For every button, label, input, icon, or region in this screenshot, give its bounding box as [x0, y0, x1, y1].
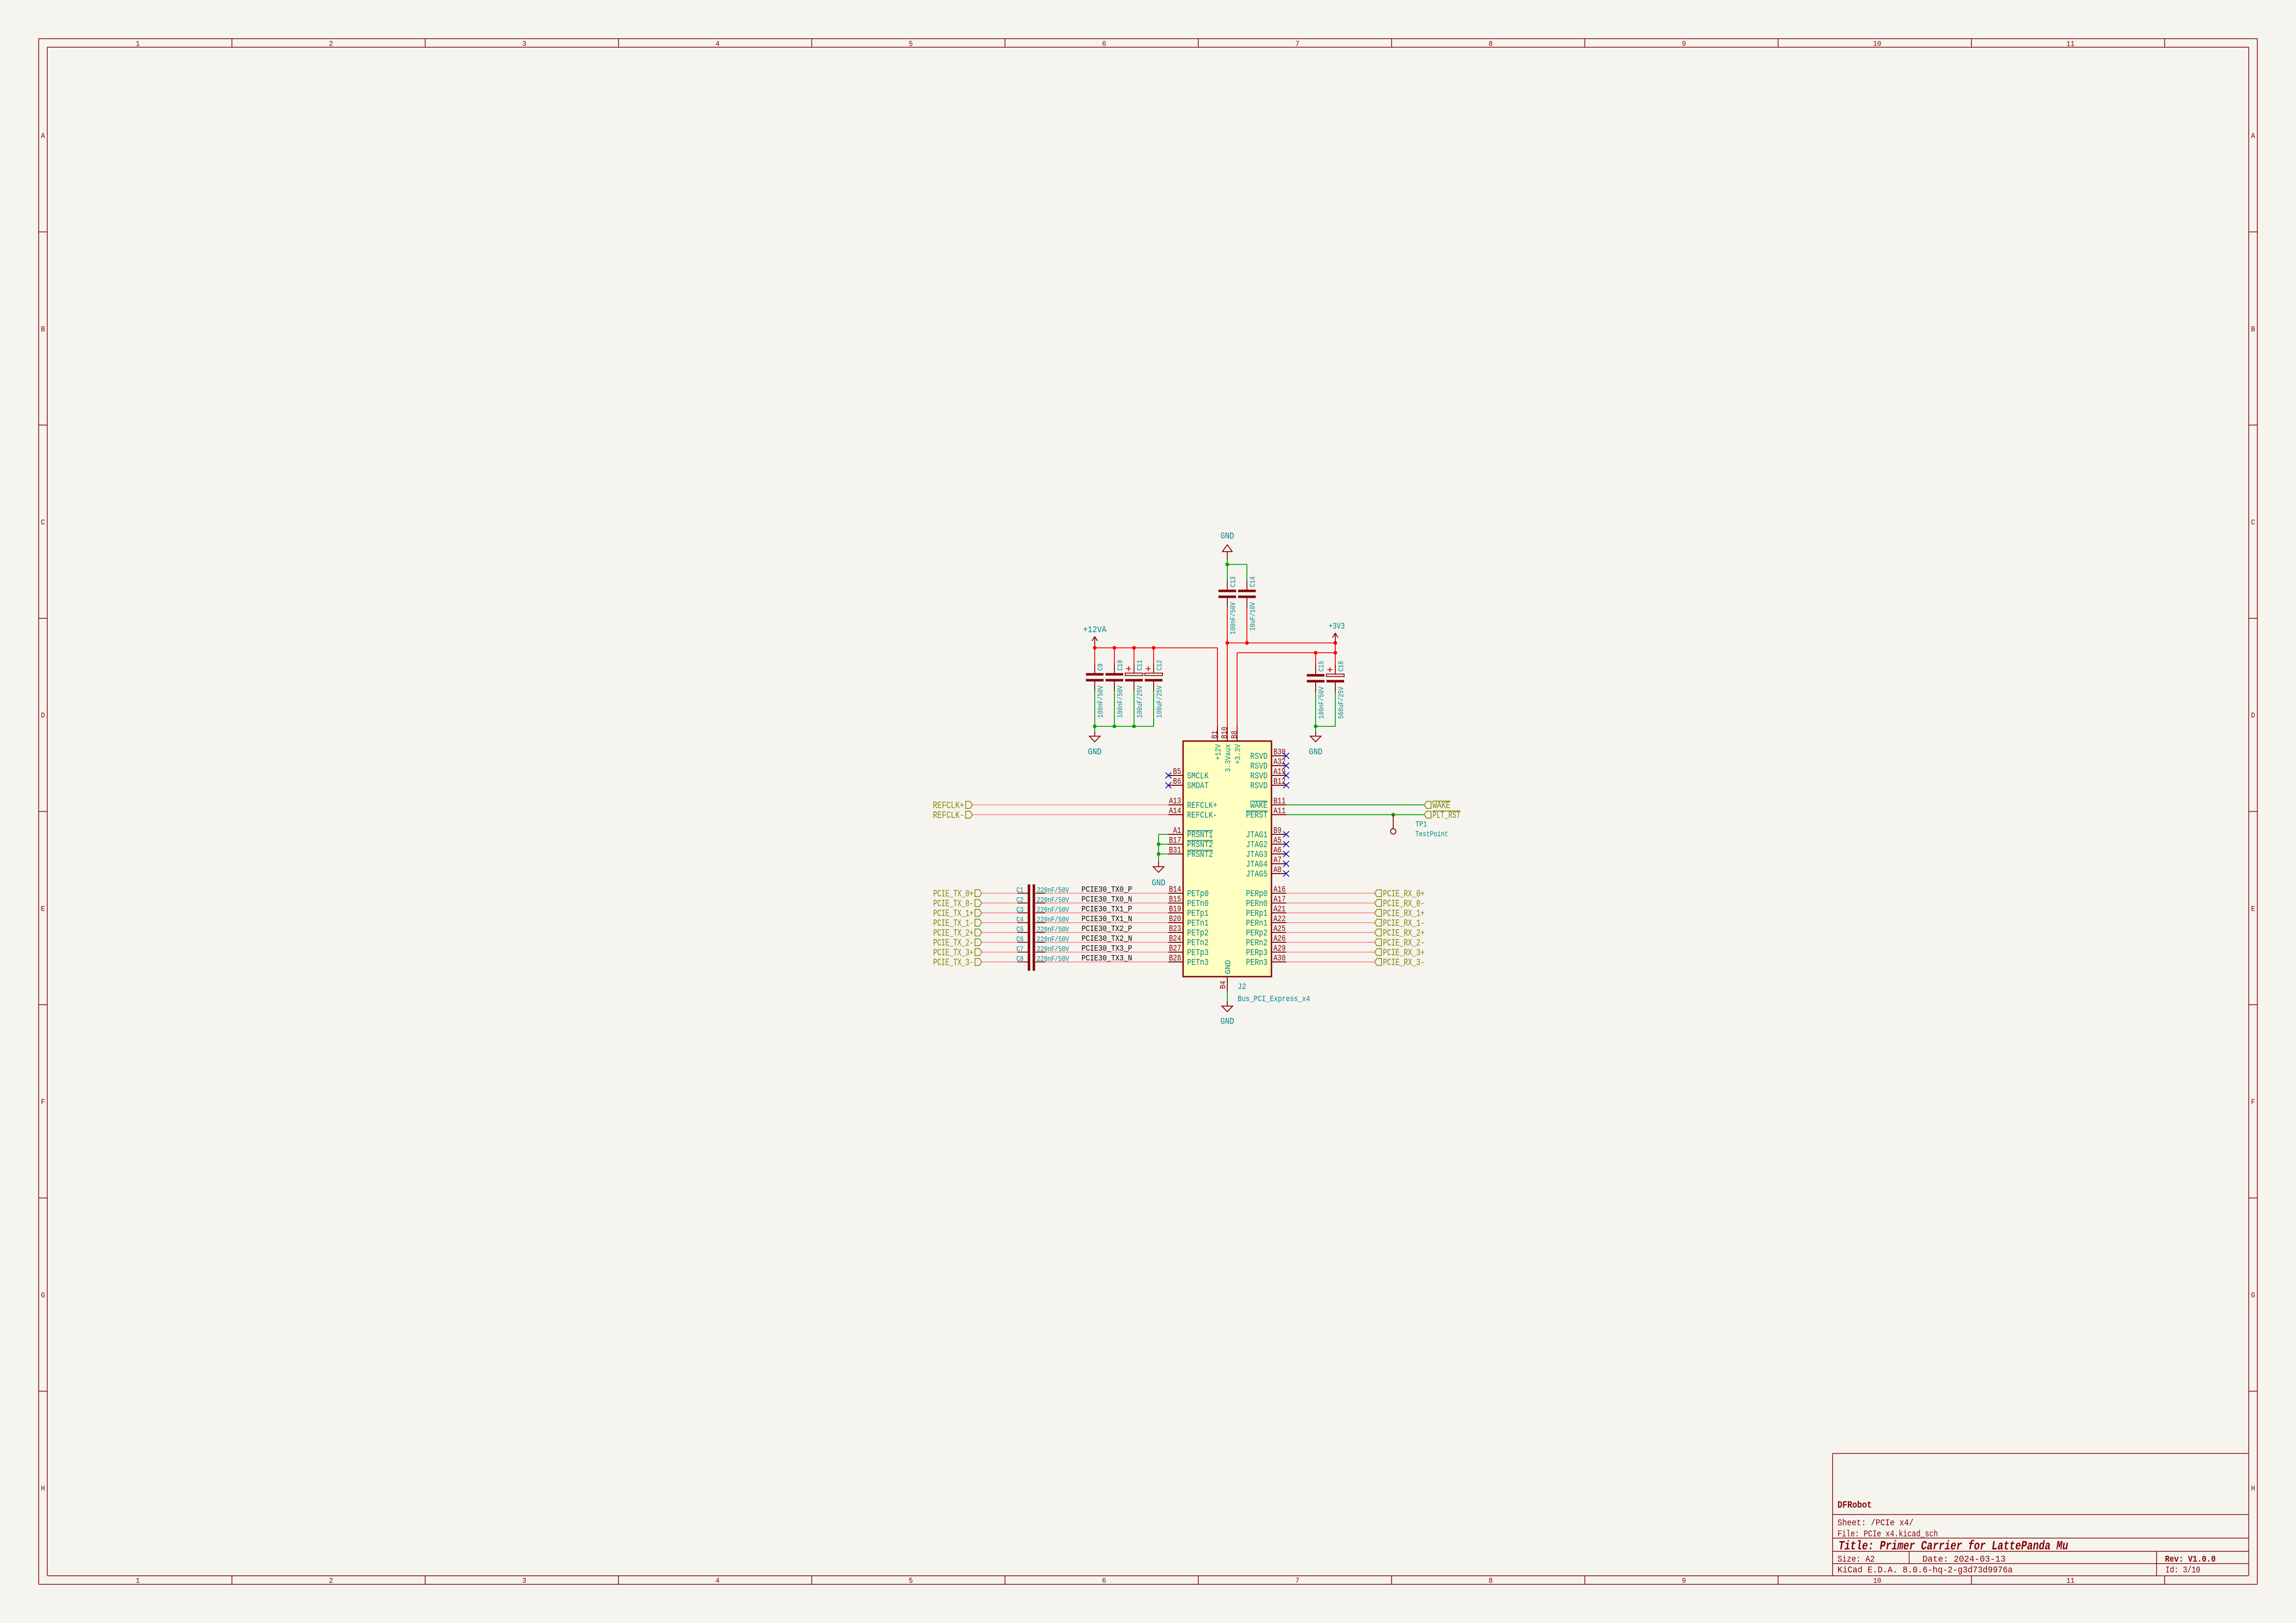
svg-text:DFRobot: DFRobot	[1837, 1500, 1872, 1511]
svg-text:GND: GND	[1088, 747, 1102, 757]
svg-text:C6: C6	[1016, 936, 1024, 944]
svg-text:JTAG2: JTAG2	[1246, 840, 1268, 850]
svg-text:A21: A21	[1273, 905, 1286, 914]
svg-text:PCIE_RX_0-: PCIE_RX_0-	[1383, 899, 1425, 909]
svg-text:KiCad E.D.A. 8.0.6-hq-2-g3d73d: KiCad E.D.A. 8.0.6-hq-2-g3d73d9976a	[1837, 1566, 2013, 1575]
svg-text:Size: A2: Size: A2	[1837, 1555, 1875, 1565]
svg-text:220nF/50V: 220nF/50V	[1037, 906, 1069, 914]
svg-text:3.3Vaux: 3.3Vaux	[1224, 744, 1233, 772]
svg-text:PCIE_RX_1+: PCIE_RX_1+	[1383, 908, 1425, 919]
svg-text:GND: GND	[1309, 747, 1323, 757]
svg-text:C: C	[41, 518, 45, 527]
svg-text:B20: B20	[1169, 914, 1181, 924]
svg-text:B11: B11	[1273, 797, 1286, 806]
svg-text:A32: A32	[1273, 757, 1286, 767]
svg-text:B12: B12	[1273, 777, 1286, 787]
svg-text:A13: A13	[1169, 797, 1181, 806]
svg-text:TP1: TP1	[1415, 820, 1427, 829]
svg-text:PCIE_TX_2-: PCIE_TX_2-	[933, 938, 973, 949]
svg-text:220nF/50V: 220nF/50V	[1037, 956, 1069, 963]
svg-text:6: 6	[1102, 1577, 1106, 1585]
svg-text:1: 1	[135, 40, 139, 49]
svg-text:E: E	[2251, 905, 2255, 913]
svg-text:PERn1: PERn1	[1246, 919, 1268, 929]
svg-text:100uF/25V: 100uF/25V	[1136, 686, 1144, 718]
svg-text:GND: GND	[1224, 960, 1233, 974]
svg-text:Date: 2024-03-13: Date: 2024-03-13	[1922, 1555, 2006, 1565]
svg-text:PCIE30_TX3_N: PCIE30_TX3_N	[1081, 954, 1132, 963]
svg-text:PRSNT2: PRSNT2	[1187, 850, 1213, 860]
svg-text:A1: A1	[1173, 826, 1181, 836]
svg-text:REFCLK+: REFCLK+	[933, 800, 964, 811]
svg-text:A16: A16	[1273, 885, 1286, 895]
svg-text:100uF/25V: 100uF/25V	[1156, 686, 1164, 718]
svg-text:PCIE_RX_2+: PCIE_RX_2+	[1383, 928, 1425, 939]
svg-text:PCIE_TX_0+: PCIE_TX_0+	[933, 889, 973, 900]
svg-text:PCIE30_TX2_P: PCIE30_TX2_P	[1081, 925, 1132, 934]
svg-text:B1: B1	[1211, 731, 1220, 739]
svg-text:B9: B9	[1273, 826, 1282, 836]
svg-text:+12VA: +12VA	[1083, 625, 1107, 635]
svg-text:8: 8	[1488, 1577, 1492, 1585]
svg-text:C7: C7	[1016, 946, 1024, 954]
svg-text:PERp3: PERp3	[1246, 948, 1268, 958]
svg-text:A5: A5	[1273, 836, 1282, 846]
svg-text:B28: B28	[1169, 954, 1181, 963]
svg-text:C4: C4	[1016, 916, 1024, 924]
svg-text:A19: A19	[1273, 767, 1286, 777]
svg-text:D: D	[41, 712, 45, 720]
svg-text:A30: A30	[1273, 954, 1286, 963]
svg-text:REFCLK+: REFCLK+	[1187, 801, 1217, 811]
svg-text:GND: GND	[1220, 532, 1234, 541]
svg-text:PCIE30_TX1_N: PCIE30_TX1_N	[1081, 915, 1132, 924]
svg-text:+3.3V: +3.3V	[1234, 744, 1243, 764]
svg-text:F: F	[41, 1098, 45, 1107]
svg-text:A17: A17	[1273, 895, 1286, 905]
svg-text:PCIE_TX_0-: PCIE_TX_0-	[933, 899, 973, 909]
svg-text:RSVD: RSVD	[1250, 781, 1268, 791]
svg-text:8: 8	[1488, 40, 1492, 49]
svg-text:B30: B30	[1273, 747, 1286, 757]
svg-text:H: H	[2251, 1485, 2255, 1493]
svg-text:PCIE30_TX1_P: PCIE30_TX1_P	[1081, 905, 1132, 914]
svg-text:PCIE_RX_0+: PCIE_RX_0+	[1383, 889, 1425, 900]
svg-text:C13: C13	[1230, 577, 1238, 587]
svg-text:220nF/50V: 220nF/50V	[1037, 887, 1069, 895]
svg-text:560uF/25V: 560uF/25V	[1338, 687, 1346, 719]
svg-text:PCIE30_TX3_P: PCIE30_TX3_P	[1081, 944, 1132, 954]
svg-text:A6: A6	[1273, 846, 1282, 855]
svg-text:9: 9	[1682, 1577, 1686, 1585]
svg-text:SMCLK: SMCLK	[1187, 772, 1209, 781]
svg-text:6: 6	[1102, 40, 1106, 49]
svg-text:A22: A22	[1273, 914, 1286, 924]
svg-text:A7: A7	[1273, 855, 1282, 865]
svg-text:PCIE30_TX2_N: PCIE30_TX2_N	[1081, 934, 1132, 944]
svg-text:C14: C14	[1249, 577, 1257, 587]
svg-text:A25: A25	[1273, 924, 1286, 934]
svg-text:PERn2: PERn2	[1246, 938, 1268, 948]
svg-text:JTAG4: JTAG4	[1246, 860, 1268, 870]
svg-text:PCIE_RX_1-: PCIE_RX_1-	[1383, 918, 1425, 929]
svg-text:+3V3: +3V3	[1329, 622, 1345, 632]
svg-text:7: 7	[1296, 1577, 1299, 1585]
svg-text:GND: GND	[1220, 1017, 1234, 1027]
svg-text:B: B	[41, 325, 45, 334]
svg-text:File: PCIe x4.kicad_sch: File: PCIe x4.kicad_sch	[1837, 1530, 1938, 1540]
svg-text:C9: C9	[1097, 664, 1105, 671]
svg-text:B17: B17	[1169, 836, 1181, 846]
svg-text:PETn0: PETn0	[1187, 899, 1209, 909]
svg-text:B6: B6	[1173, 777, 1181, 787]
svg-text:RSVD: RSVD	[1250, 762, 1268, 772]
svg-text:PCIE_TX_1-: PCIE_TX_1-	[933, 918, 973, 929]
svg-text:TestPoint: TestPoint	[1415, 830, 1448, 839]
svg-text:PCIE_TX_1+: PCIE_TX_1+	[933, 908, 973, 919]
svg-text:PETn2: PETn2	[1187, 938, 1209, 948]
svg-text:C12: C12	[1156, 660, 1164, 671]
svg-text:C8: C8	[1016, 956, 1024, 963]
svg-text:PCIE_RX_3+: PCIE_RX_3+	[1383, 948, 1425, 958]
svg-text:WAKE: WAKE	[1250, 801, 1268, 811]
svg-text:100nF/50V: 100nF/50V	[1318, 687, 1326, 719]
svg-text:100nF/50V: 100nF/50V	[1117, 686, 1125, 718]
svg-text:D: D	[2251, 712, 2255, 720]
svg-text:A: A	[41, 132, 45, 140]
svg-text:REFCLK-: REFCLK-	[933, 810, 964, 821]
svg-text:3: 3	[522, 40, 526, 49]
svg-text:JTAG1: JTAG1	[1246, 830, 1268, 840]
svg-text:RSVD: RSVD	[1250, 752, 1268, 762]
svg-text:220nF/50V: 220nF/50V	[1037, 916, 1069, 924]
svg-text:C10: C10	[1117, 660, 1125, 671]
svg-text:Title: Primer Carrier for Latt: Title: Primer Carrier for LattePanda Mu	[1838, 1539, 2068, 1553]
svg-text:B14: B14	[1169, 885, 1181, 895]
svg-text:C11: C11	[1136, 660, 1144, 671]
svg-text:5: 5	[909, 1577, 913, 1585]
svg-text:PETn1: PETn1	[1187, 919, 1209, 929]
svg-text:PCIE_TX_3+: PCIE_TX_3+	[933, 948, 973, 958]
svg-text:JTAG3: JTAG3	[1246, 850, 1268, 860]
svg-text:2: 2	[329, 40, 333, 49]
svg-text:C3: C3	[1016, 906, 1024, 914]
svg-text:7: 7	[1296, 40, 1299, 49]
svg-text:220nF/50V: 220nF/50V	[1037, 897, 1069, 905]
svg-text:H: H	[41, 1485, 45, 1493]
svg-text:PETp1: PETp1	[1187, 909, 1209, 919]
svg-text:PETp2: PETp2	[1187, 929, 1209, 938]
svg-text:9: 9	[1682, 40, 1686, 49]
svg-text:A8: A8	[1273, 865, 1282, 875]
svg-text:B8: B8	[1230, 731, 1240, 739]
svg-text:PLT_RST: PLT_RST	[1432, 810, 1460, 821]
svg-text:PERp0: PERp0	[1246, 889, 1268, 899]
svg-text:Id: 3/10: Id: 3/10	[2165, 1566, 2200, 1575]
svg-text:C1: C1	[1016, 887, 1024, 895]
svg-text:4: 4	[716, 40, 720, 49]
svg-text:10: 10	[1873, 1577, 1882, 1585]
svg-text:B15: B15	[1169, 895, 1181, 905]
svg-text:B27: B27	[1169, 944, 1181, 954]
svg-text:B10: B10	[1220, 727, 1230, 739]
svg-text:C: C	[2251, 518, 2255, 527]
svg-text:11: 11	[2066, 1577, 2075, 1585]
svg-text:PCIE30_TX0_P: PCIE30_TX0_P	[1081, 885, 1132, 895]
svg-text:Rev: V1.0.0: Rev: V1.0.0	[2165, 1555, 2215, 1565]
svg-text:A29: A29	[1273, 944, 1286, 954]
svg-text:1: 1	[135, 1577, 139, 1585]
svg-text:B19: B19	[1169, 905, 1181, 914]
svg-text:PCIE30_TX0_N: PCIE30_TX0_N	[1081, 895, 1132, 905]
svg-text:B31: B31	[1169, 846, 1181, 855]
svg-text:220nF/50V: 220nF/50V	[1037, 946, 1069, 954]
svg-text:J2: J2	[1238, 983, 1246, 992]
svg-text:PERn0: PERn0	[1246, 899, 1268, 909]
svg-text:A26: A26	[1273, 934, 1286, 944]
svg-text:A11: A11	[1273, 806, 1286, 816]
svg-text:PERST: PERST	[1246, 811, 1268, 821]
svg-text:PCIE_TX_2+: PCIE_TX_2+	[933, 928, 973, 939]
svg-text:C2: C2	[1016, 897, 1024, 905]
svg-text:100nF/50V: 100nF/50V	[1097, 686, 1105, 718]
svg-text:C16: C16	[1338, 661, 1346, 672]
svg-text:PCIE_RX_2-: PCIE_RX_2-	[1383, 938, 1425, 949]
svg-text:PCIE_RX_3-: PCIE_RX_3-	[1383, 958, 1425, 968]
svg-text:PRSNT1: PRSNT1	[1187, 830, 1213, 840]
svg-text:A14: A14	[1169, 806, 1181, 816]
svg-text:PERp2: PERp2	[1246, 929, 1268, 938]
svg-text:PRSNT2: PRSNT2	[1187, 840, 1213, 850]
svg-text:REFCLK-: REFCLK-	[1187, 811, 1217, 821]
svg-text:PCIE_TX_3-: PCIE_TX_3-	[933, 958, 973, 968]
svg-text:10: 10	[1873, 40, 1882, 49]
svg-text:PETp0: PETp0	[1187, 889, 1209, 899]
svg-text:B: B	[2251, 325, 2255, 334]
svg-text:4: 4	[716, 1577, 720, 1585]
svg-text:C15: C15	[1318, 661, 1326, 672]
svg-text:SMDAT: SMDAT	[1187, 781, 1209, 791]
svg-text:PERn3: PERn3	[1246, 958, 1268, 968]
svg-text:G: G	[2251, 1291, 2255, 1300]
svg-text:E: E	[41, 905, 45, 913]
svg-text:PETp3: PETp3	[1187, 948, 1209, 958]
svg-text:PETn3: PETn3	[1187, 958, 1209, 968]
svg-text:RSVD: RSVD	[1250, 772, 1268, 781]
svg-text:JTAG5: JTAG5	[1246, 870, 1268, 879]
svg-text:5: 5	[909, 40, 913, 49]
svg-text:B5: B5	[1173, 767, 1181, 777]
svg-text:Sheet: /PCIe x4/: Sheet: /PCIe x4/	[1837, 1518, 1914, 1528]
svg-text:B24: B24	[1169, 934, 1181, 944]
svg-text:Bus_PCI_Express_x4: Bus_PCI_Express_x4	[1238, 994, 1310, 1004]
svg-text:B4: B4	[1219, 981, 1228, 989]
svg-text:WAKE: WAKE	[1432, 800, 1450, 811]
svg-text:B23: B23	[1169, 924, 1181, 934]
svg-text:C5: C5	[1016, 926, 1024, 934]
svg-text:220nF/50V: 220nF/50V	[1037, 936, 1069, 944]
svg-text:+12V: +12V	[1214, 744, 1223, 760]
svg-text:3: 3	[522, 1577, 526, 1585]
svg-text:G: G	[41, 1291, 45, 1300]
svg-text:A: A	[2251, 132, 2255, 140]
svg-text:GND: GND	[1152, 878, 1165, 888]
svg-text:10uF/10V: 10uF/10V	[1249, 602, 1257, 631]
svg-text:PERp1: PERp1	[1246, 909, 1268, 919]
svg-text:F: F	[2251, 1098, 2255, 1107]
svg-text:220nF/50V: 220nF/50V	[1037, 926, 1069, 934]
svg-text:100nF/50V: 100nF/50V	[1230, 602, 1238, 635]
svg-text:11: 11	[2066, 40, 2075, 49]
svg-text:2: 2	[329, 1577, 333, 1585]
